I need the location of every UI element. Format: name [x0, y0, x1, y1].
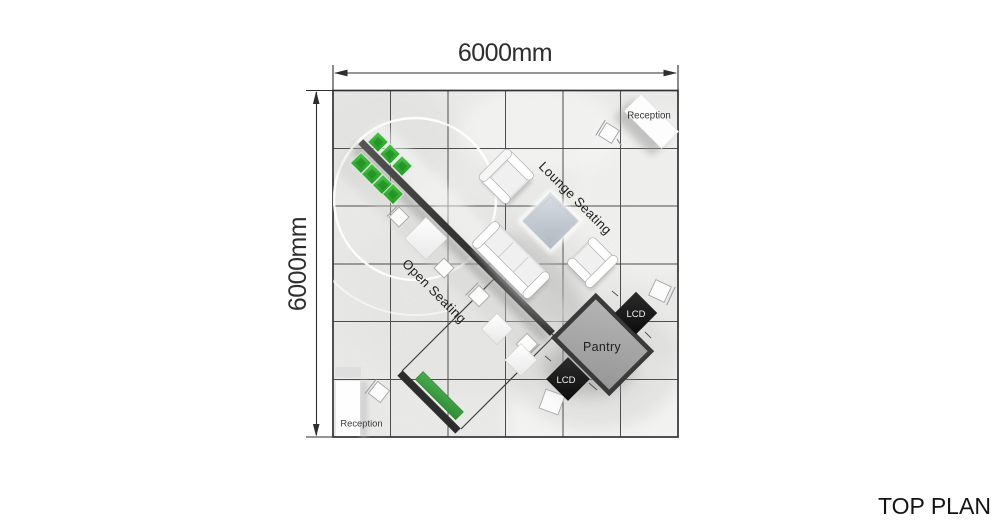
svg-text:6000mm: 6000mm	[458, 39, 552, 67]
svg-text:LCD: LCD	[626, 309, 645, 320]
svg-text:6000mm: 6000mm	[284, 217, 312, 311]
svg-text:LCD: LCD	[556, 375, 575, 386]
svg-text:Pantry: Pantry	[583, 340, 621, 354]
svg-text:Reception: Reception	[340, 418, 382, 429]
svg-text:TOP PLAN: TOP PLAN	[878, 493, 991, 519]
svg-text:Reception: Reception	[627, 111, 671, 122]
